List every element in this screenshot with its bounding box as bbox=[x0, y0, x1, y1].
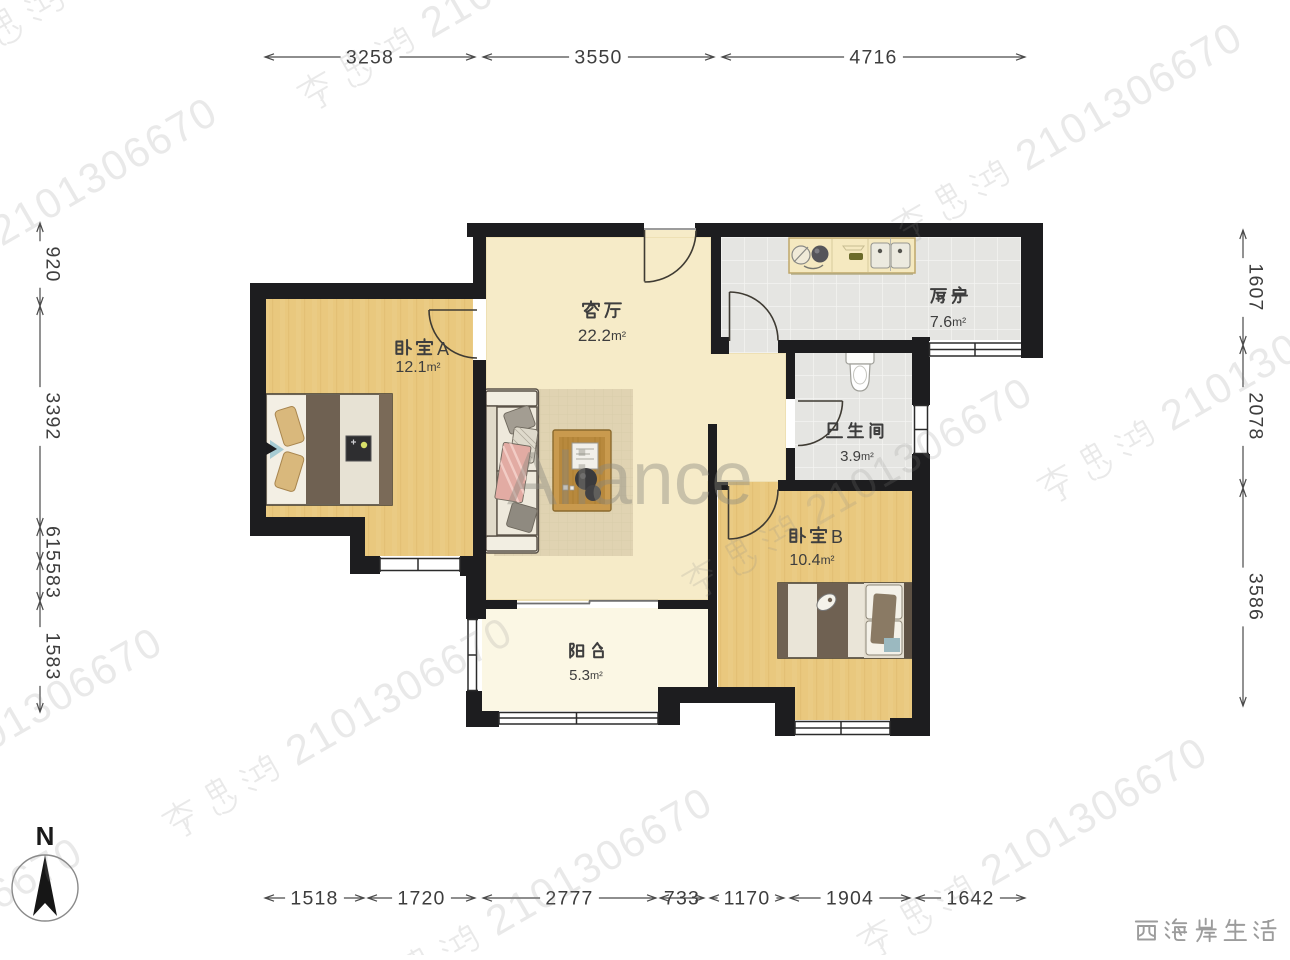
svg-text:12.1m²: 12.1m² bbox=[395, 359, 440, 376]
svg-text:10.4m²: 10.4m² bbox=[789, 552, 834, 569]
svg-text:583: 583 bbox=[42, 563, 64, 599]
svg-text:1720: 1720 bbox=[397, 888, 445, 910]
svg-text:920: 920 bbox=[42, 246, 64, 282]
svg-text:1607: 1607 bbox=[1245, 263, 1267, 311]
svg-text:Aliance: Aliance bbox=[507, 436, 753, 520]
svg-text:1170: 1170 bbox=[724, 888, 771, 910]
svg-text:A: A bbox=[437, 339, 449, 359]
svg-text:1518: 1518 bbox=[290, 888, 338, 910]
svg-text:3392: 3392 bbox=[42, 392, 64, 440]
svg-text:4716: 4716 bbox=[849, 47, 897, 69]
svg-text:2078: 2078 bbox=[1245, 392, 1267, 440]
svg-text:3550: 3550 bbox=[574, 47, 622, 69]
svg-text:5.3m²: 5.3m² bbox=[569, 667, 603, 684]
svg-text:615: 615 bbox=[42, 526, 64, 562]
svg-text:22.2m²: 22.2m² bbox=[578, 326, 627, 345]
svg-text:733: 733 bbox=[664, 888, 700, 910]
svg-text:B: B bbox=[831, 527, 843, 547]
svg-text:7.6m²: 7.6m² bbox=[930, 314, 966, 331]
svg-text:1904: 1904 bbox=[826, 888, 874, 910]
svg-text:3586: 3586 bbox=[1245, 573, 1267, 621]
